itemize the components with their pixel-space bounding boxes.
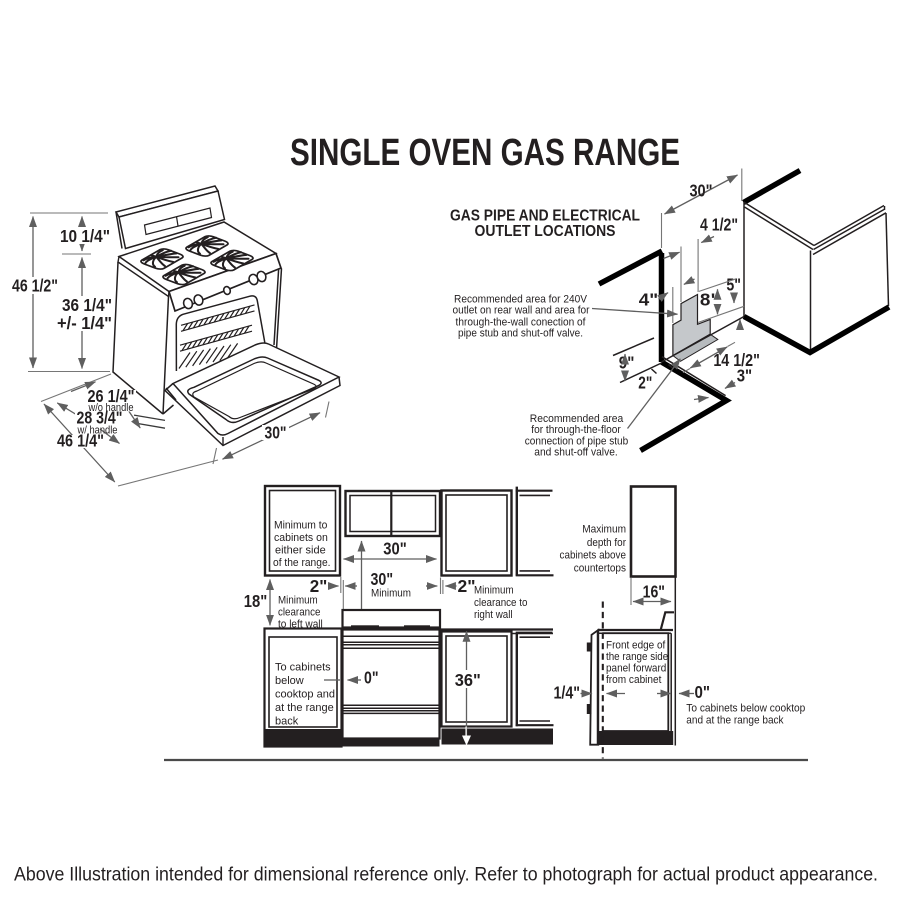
svg-text:outlet on rear wall and area f: outlet on rear wall and area for (453, 305, 590, 317)
svg-text:Above Illustration intended fo: Above Illustration intended for dimensio… (14, 864, 878, 886)
svg-text:Minimum to: Minimum to (274, 520, 327, 532)
svg-text:cooktop and: cooktop and (275, 689, 335, 701)
svg-text:clearance: clearance (278, 607, 320, 619)
svg-text:1/4": 1/4" (554, 683, 581, 703)
svg-text:36": 36" (455, 670, 481, 690)
svg-text:for through-the-floor: for through-the-floor (531, 424, 621, 436)
svg-text:2": 2" (638, 373, 652, 393)
svg-text:10 1/4": 10 1/4" (60, 226, 110, 246)
svg-text:back: back (275, 716, 299, 728)
svg-text:and shut-off valve.: and shut-off valve. (534, 446, 618, 458)
svg-text:30": 30" (371, 569, 394, 589)
svg-text:SINGLE OVEN GAS RANGE: SINGLE OVEN GAS RANGE (290, 132, 680, 174)
svg-text:2": 2" (310, 576, 328, 596)
svg-text:and at the range back: and at the range back (686, 715, 784, 727)
svg-text:Recommended area for 240V: Recommended area for 240V (454, 294, 588, 306)
svg-text:Minimum: Minimum (371, 588, 411, 600)
svg-text:through-the-wall conection of: through-the-wall conection of (456, 316, 587, 328)
svg-text:OUTLET LOCATIONS: OUTLET LOCATIONS (475, 223, 616, 240)
svg-text:at the range: at the range (275, 702, 334, 714)
svg-text:from cabinet: from cabinet (606, 674, 661, 686)
svg-text:countertops: countertops (574, 562, 627, 574)
svg-text:Front edge of: Front edge of (606, 640, 666, 652)
svg-text:of the range.: of the range. (273, 557, 331, 569)
svg-text:30": 30" (265, 423, 287, 443)
svg-text:GAS PIPE AND ELECTRICAL: GAS PIPE AND ELECTRICAL (450, 208, 640, 225)
svg-text:Maximum: Maximum (582, 524, 626, 536)
svg-text:To cabinets below cooktop: To cabinets below cooktop (686, 703, 805, 715)
svg-text:depth for: depth for (587, 537, 626, 549)
svg-text:9": 9" (619, 353, 635, 373)
svg-text:cabinets on: cabinets on (274, 532, 328, 544)
svg-text:8": 8" (700, 290, 720, 310)
svg-text:18": 18" (244, 591, 268, 611)
svg-text:the range side: the range side (606, 651, 668, 663)
svg-text:cabinets above: cabinets above (560, 550, 627, 562)
svg-text:To cabinets: To cabinets (275, 662, 331, 674)
svg-text:either side: either side (275, 545, 326, 557)
svg-text:+/- 1/4": +/- 1/4" (57, 313, 112, 333)
svg-text:4": 4" (639, 290, 658, 310)
svg-text:Minimum: Minimum (278, 595, 318, 607)
svg-text:0": 0" (695, 682, 711, 702)
svg-text:36 1/4": 36 1/4" (62, 295, 112, 315)
svg-text:0": 0" (364, 668, 379, 688)
svg-text:5": 5" (726, 275, 741, 295)
svg-text:4 1/2": 4 1/2" (700, 215, 738, 235)
svg-text:right wall: right wall (474, 609, 513, 621)
svg-text:clearance to: clearance to (474, 597, 527, 609)
svg-text:3": 3" (737, 366, 752, 386)
svg-text:Minimum: Minimum (474, 585, 514, 597)
svg-text:30": 30" (690, 181, 713, 201)
svg-text:46 1/2": 46 1/2" (12, 276, 58, 296)
svg-text:30": 30" (383, 539, 406, 559)
svg-text:2": 2" (458, 576, 476, 596)
svg-text:below: below (275, 675, 304, 687)
svg-text:pipe stub and shut-off valve.: pipe stub and shut-off valve. (458, 328, 583, 340)
svg-text:panel forward: panel forward (606, 663, 666, 675)
svg-text:46 1/4": 46 1/4" (57, 431, 104, 451)
svg-text:16": 16" (643, 582, 665, 602)
